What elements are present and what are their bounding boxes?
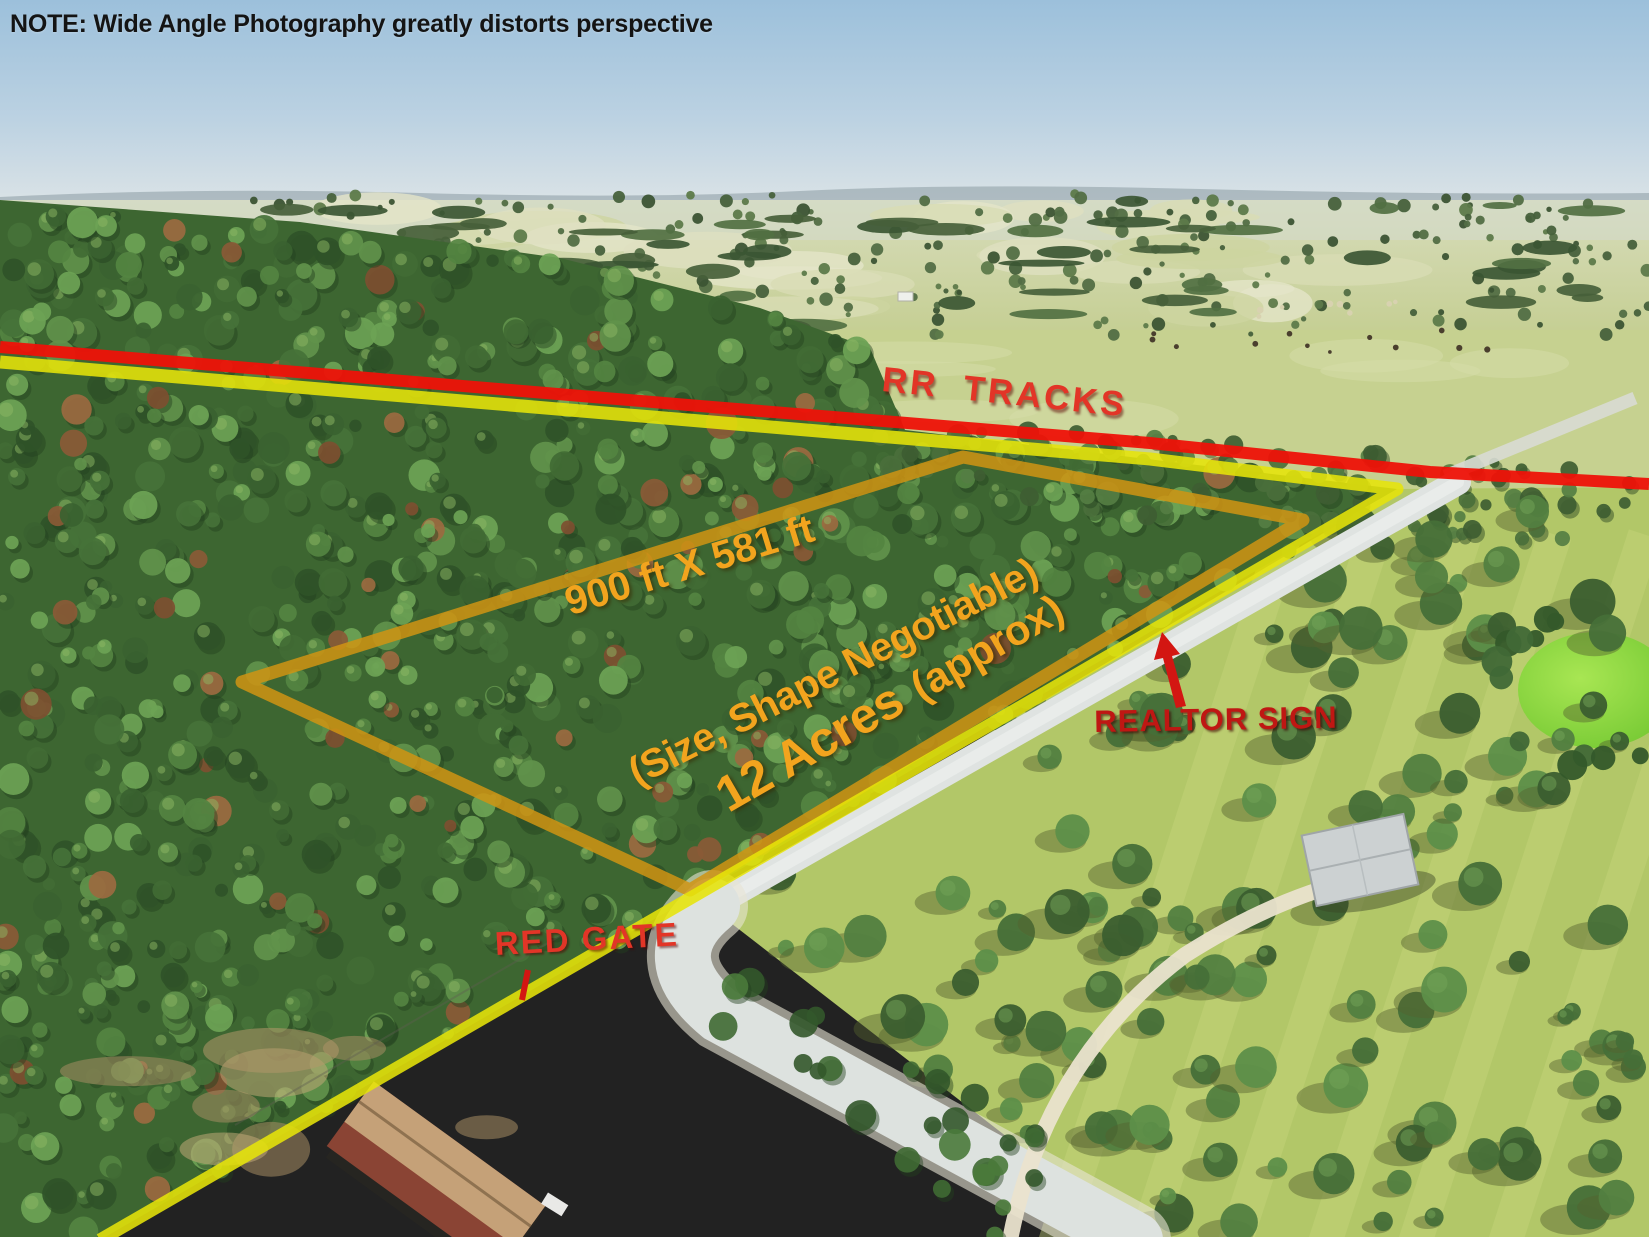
aerial-photo-stage: NOTE: Wide Angle Photography greatly dis… [0,0,1649,1237]
aerial-photo [0,0,1649,1237]
realtor-sign-label: REALTOR SIGN [1094,702,1338,739]
parked-vehicle [541,1193,568,1217]
bottom-house [321,1081,547,1237]
note-label: NOTE: Wide Angle Photography greatly dis… [10,11,713,37]
distant-shed [898,292,913,301]
